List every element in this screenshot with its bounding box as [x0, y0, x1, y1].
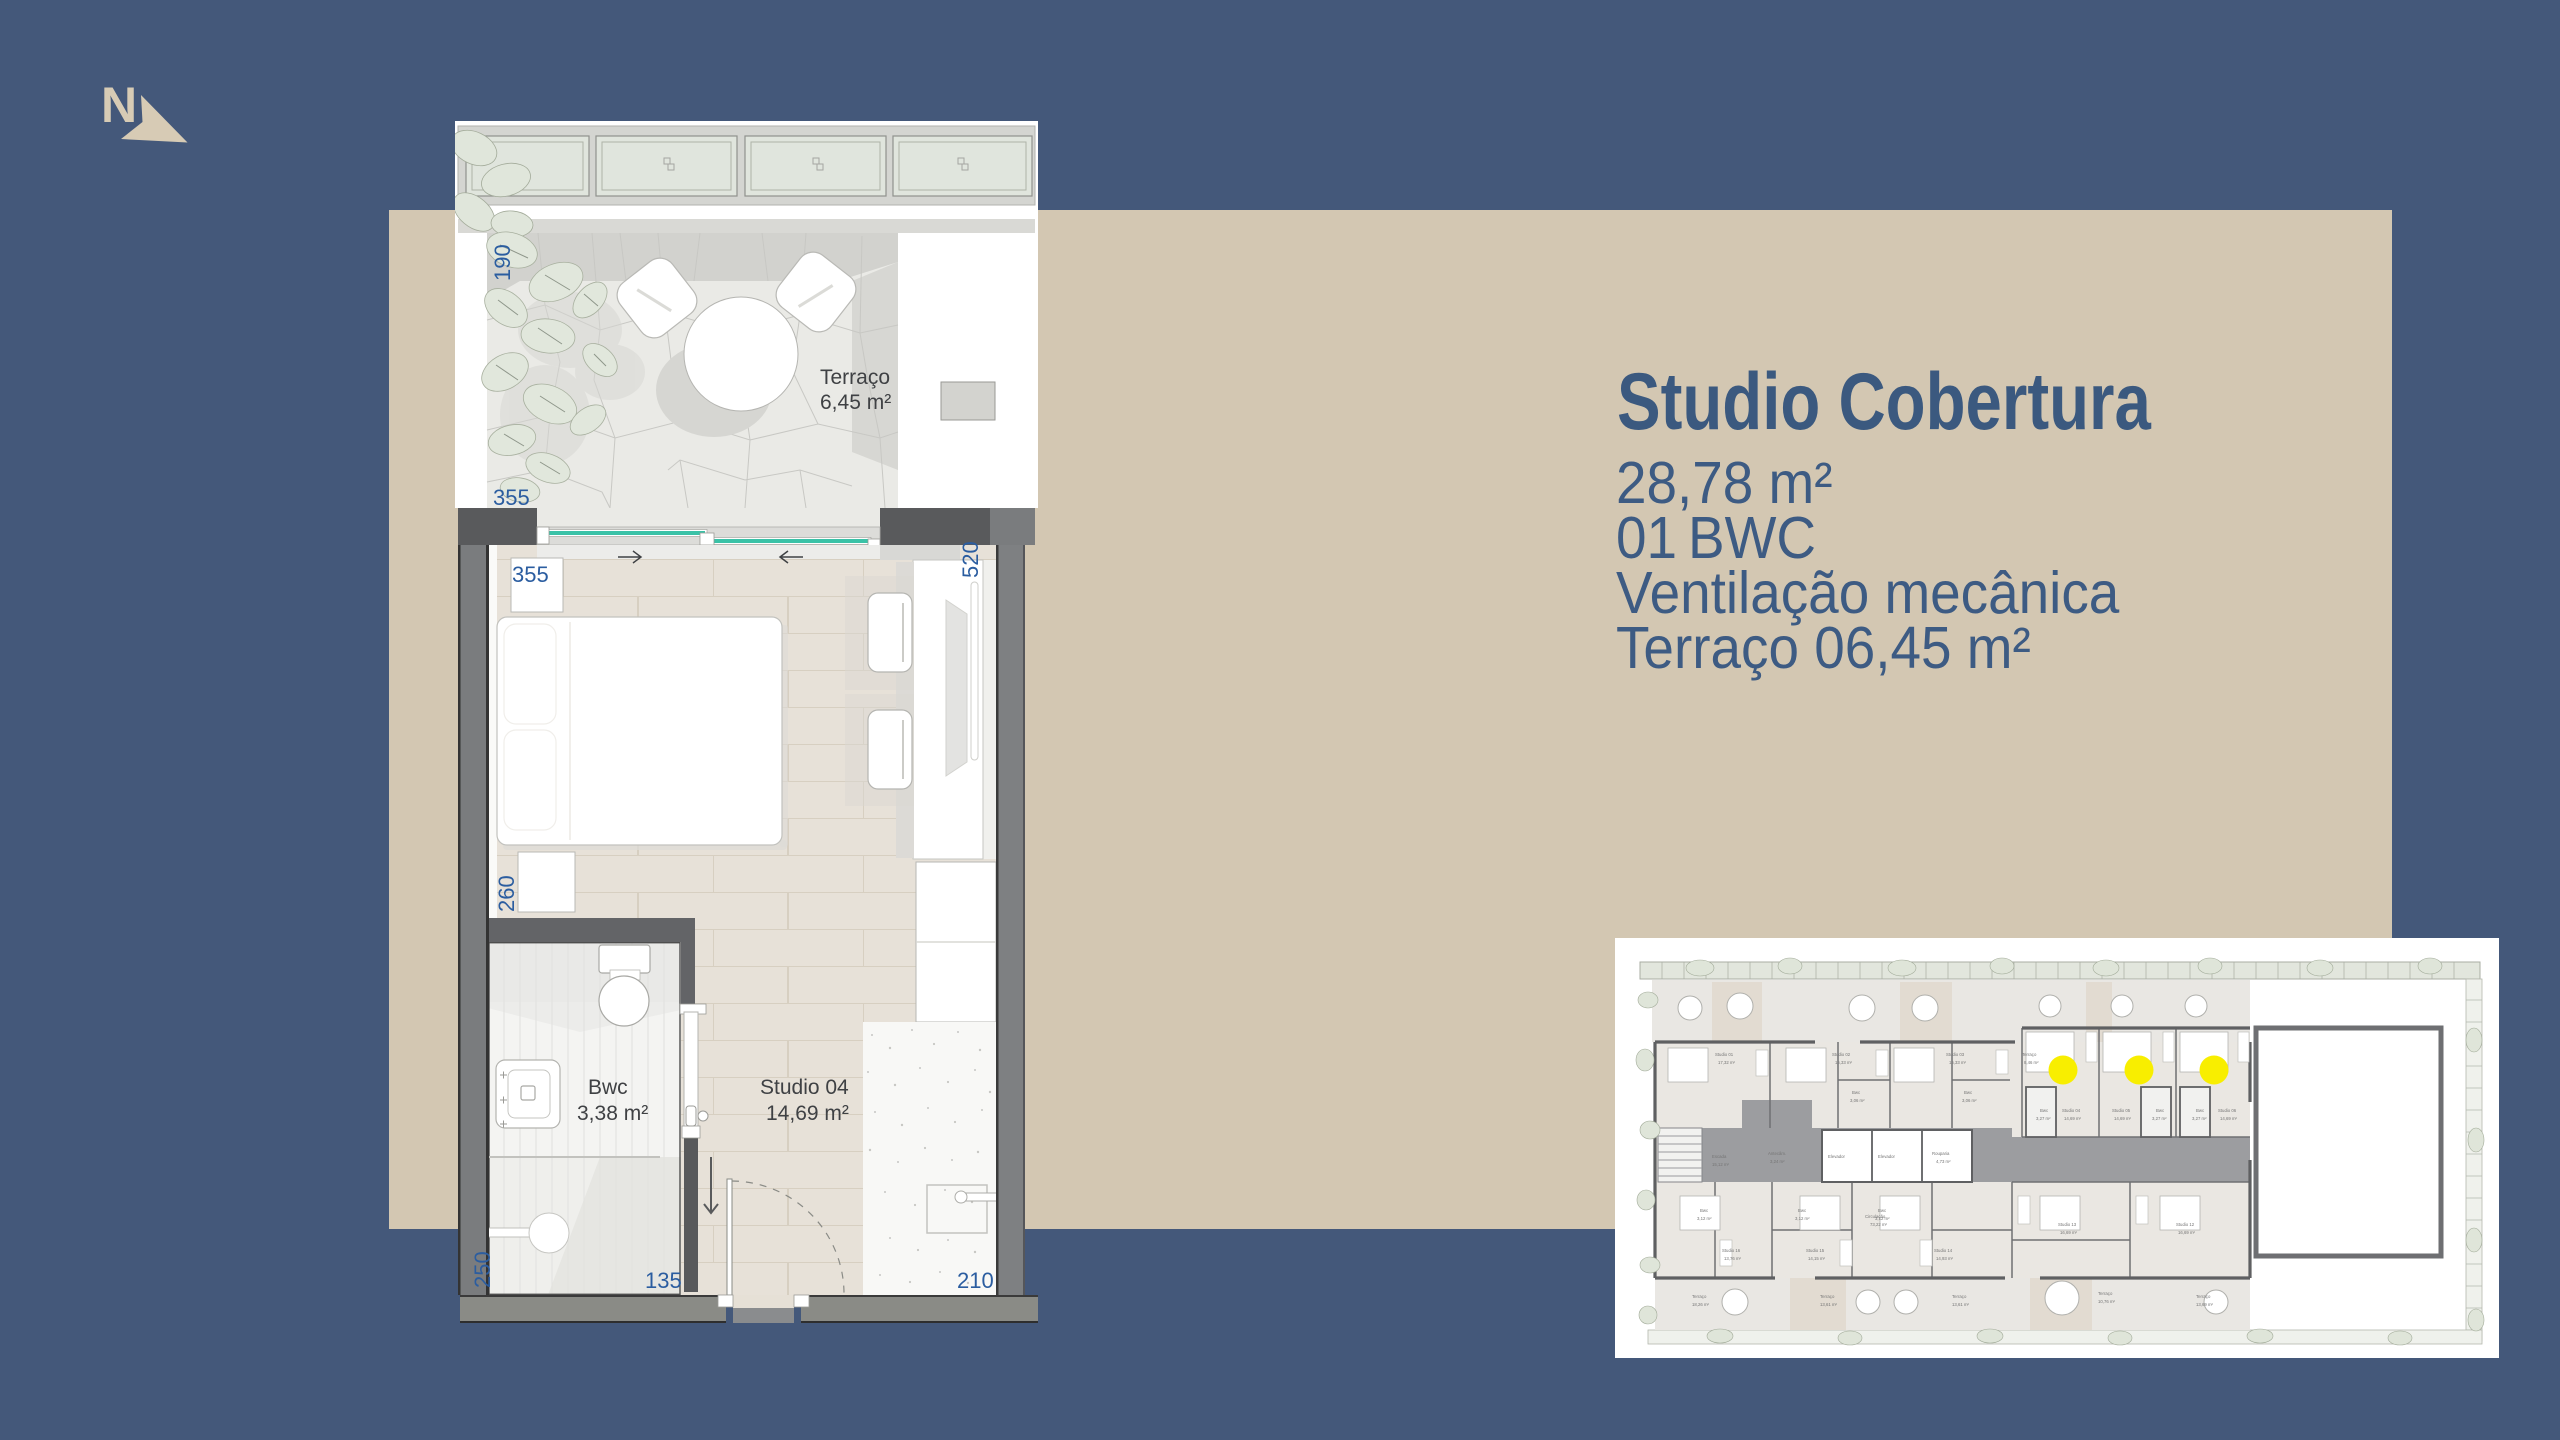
svg-text:13,61 m²: 13,61 m²: [1952, 1302, 1970, 1307]
svg-text:3,12 m²: 3,12 m²: [1697, 1216, 1712, 1221]
svg-text:6,45 m²: 6,45 m²: [820, 391, 891, 414]
svg-text:3,27 m²: 3,27 m²: [2036, 1116, 2051, 1121]
svg-text:16,69 m²: 16,69 m²: [2060, 1230, 2078, 1235]
svg-text:3,27 m²: 3,27 m²: [2192, 1116, 2207, 1121]
svg-text:Bwc: Bwc: [2040, 1108, 2049, 1113]
svg-text:Bwc: Bwc: [2156, 1108, 2165, 1113]
svg-text:135: 135: [645, 1268, 682, 1293]
svg-text:Terraço: Terraço: [1952, 1294, 1967, 1299]
svg-text:3,24 m²: 3,24 m²: [1770, 1159, 1785, 1164]
svg-text:Rouparia: Rouparia: [1932, 1151, 1950, 1156]
svg-text:260: 260: [494, 875, 519, 912]
svg-text:210: 210: [957, 1268, 994, 1293]
svg-text:4,73 m²: 4,73 m²: [1936, 1159, 1951, 1164]
svg-text:16,69 m²: 16,69 m²: [2178, 1230, 2196, 1235]
svg-text:Bwc: Bwc: [1964, 1090, 1973, 1095]
svg-text:14,69 m²: 14,69 m²: [2220, 1116, 2238, 1121]
svg-text:Studio 13: Studio 13: [2058, 1222, 2077, 1227]
svg-text:3,38 m²: 3,38 m²: [577, 1102, 648, 1125]
svg-text:Bwc: Bwc: [2196, 1108, 2205, 1113]
svg-text:Antecâm.: Antecâm.: [1768, 1151, 1786, 1156]
svg-text:18,26 m²: 18,26 m²: [1692, 1302, 1710, 1307]
svg-text:Studio 04: Studio 04: [2062, 1108, 2081, 1113]
svg-text:Studio 12: Studio 12: [2176, 1222, 2195, 1227]
svg-text:N: N: [101, 78, 137, 133]
svg-text:Terraço: Terraço: [1692, 1294, 1707, 1299]
svg-text:16,33 m²: 16,33 m²: [1949, 1060, 1967, 1065]
svg-text:3,12 m²: 3,12 m²: [1795, 1216, 1810, 1221]
svg-text:14,69 m²: 14,69 m²: [2114, 1116, 2132, 1121]
svg-text:Bwc: Bwc: [1700, 1208, 1709, 1213]
svg-text:73,22 m²: 73,22 m²: [1870, 1222, 1888, 1227]
svg-text:15,12 m²: 15,12 m²: [1712, 1162, 1730, 1167]
svg-text:Elevador: Elevador: [1878, 1154, 1896, 1159]
svg-text:14,69 m²: 14,69 m²: [2064, 1116, 2082, 1121]
svg-text:Studio 15: Studio 15: [1806, 1248, 1825, 1253]
svg-text:520: 520: [958, 541, 983, 578]
svg-text:Studio 05: Studio 05: [2112, 1108, 2131, 1113]
svg-text:14,15 m²: 14,15 m²: [1808, 1256, 1826, 1261]
svg-text:Studio 02: Studio 02: [1832, 1052, 1851, 1057]
svg-text:Bwc: Bwc: [1798, 1208, 1807, 1213]
svg-text:Studio 01: Studio 01: [1715, 1052, 1734, 1057]
svg-text:17,32 m²: 17,32 m²: [1718, 1060, 1736, 1065]
svg-text:3,27 m²: 3,27 m²: [2152, 1116, 2167, 1121]
svg-text:355: 355: [493, 485, 530, 510]
svg-text:13,61 m²: 13,61 m²: [1820, 1302, 1838, 1307]
svg-text:Studio 03: Studio 03: [1946, 1052, 1965, 1057]
svg-text:Studio 14: Studio 14: [1934, 1248, 1953, 1253]
svg-text:Terraço: Terraço: [2098, 1291, 2113, 1296]
svg-text:250: 250: [470, 1251, 495, 1288]
svg-text:Terraço: Terraço: [2196, 1294, 2211, 1299]
svg-text:3,12 m²: 3,12 m²: [1875, 1216, 1890, 1221]
svg-text:Bwc: Bwc: [1852, 1090, 1861, 1095]
svg-text:13,76 m²: 13,76 m²: [1724, 1256, 1742, 1261]
svg-text:Studio 04: Studio 04: [760, 1076, 849, 1099]
svg-text:14,93 m²: 14,93 m²: [1936, 1256, 1954, 1261]
svg-text:Terraço: Terraço: [1820, 1294, 1835, 1299]
svg-text:355: 355: [512, 562, 549, 587]
svg-text:Bwc: Bwc: [588, 1076, 628, 1099]
svg-text:10,76 m²: 10,76 m²: [2098, 1299, 2116, 1304]
svg-text:8,46 m²: 8,46 m²: [2024, 1060, 2039, 1065]
svg-text:Escada: Escada: [1712, 1154, 1727, 1159]
svg-text:3,06 m²: 3,06 m²: [1962, 1098, 1977, 1103]
svg-text:16,33 m²: 16,33 m²: [1835, 1060, 1853, 1065]
svg-text:Studio 06: Studio 06: [2218, 1108, 2237, 1113]
svg-text:14,69 m²: 14,69 m²: [766, 1102, 849, 1125]
svg-text:13,69 m²: 13,69 m²: [2196, 1302, 2214, 1307]
svg-text:Terraço: Terraço: [820, 366, 890, 389]
svg-text:Bwc: Bwc: [1878, 1208, 1887, 1213]
svg-text:Studio 16: Studio 16: [1722, 1248, 1741, 1253]
svg-text:190: 190: [490, 244, 515, 281]
svg-text:Elevador: Elevador: [1828, 1154, 1846, 1159]
svg-text:3,06 m²: 3,06 m²: [1850, 1098, 1865, 1103]
svg-text:Terraço: Terraço: [2022, 1052, 2037, 1057]
